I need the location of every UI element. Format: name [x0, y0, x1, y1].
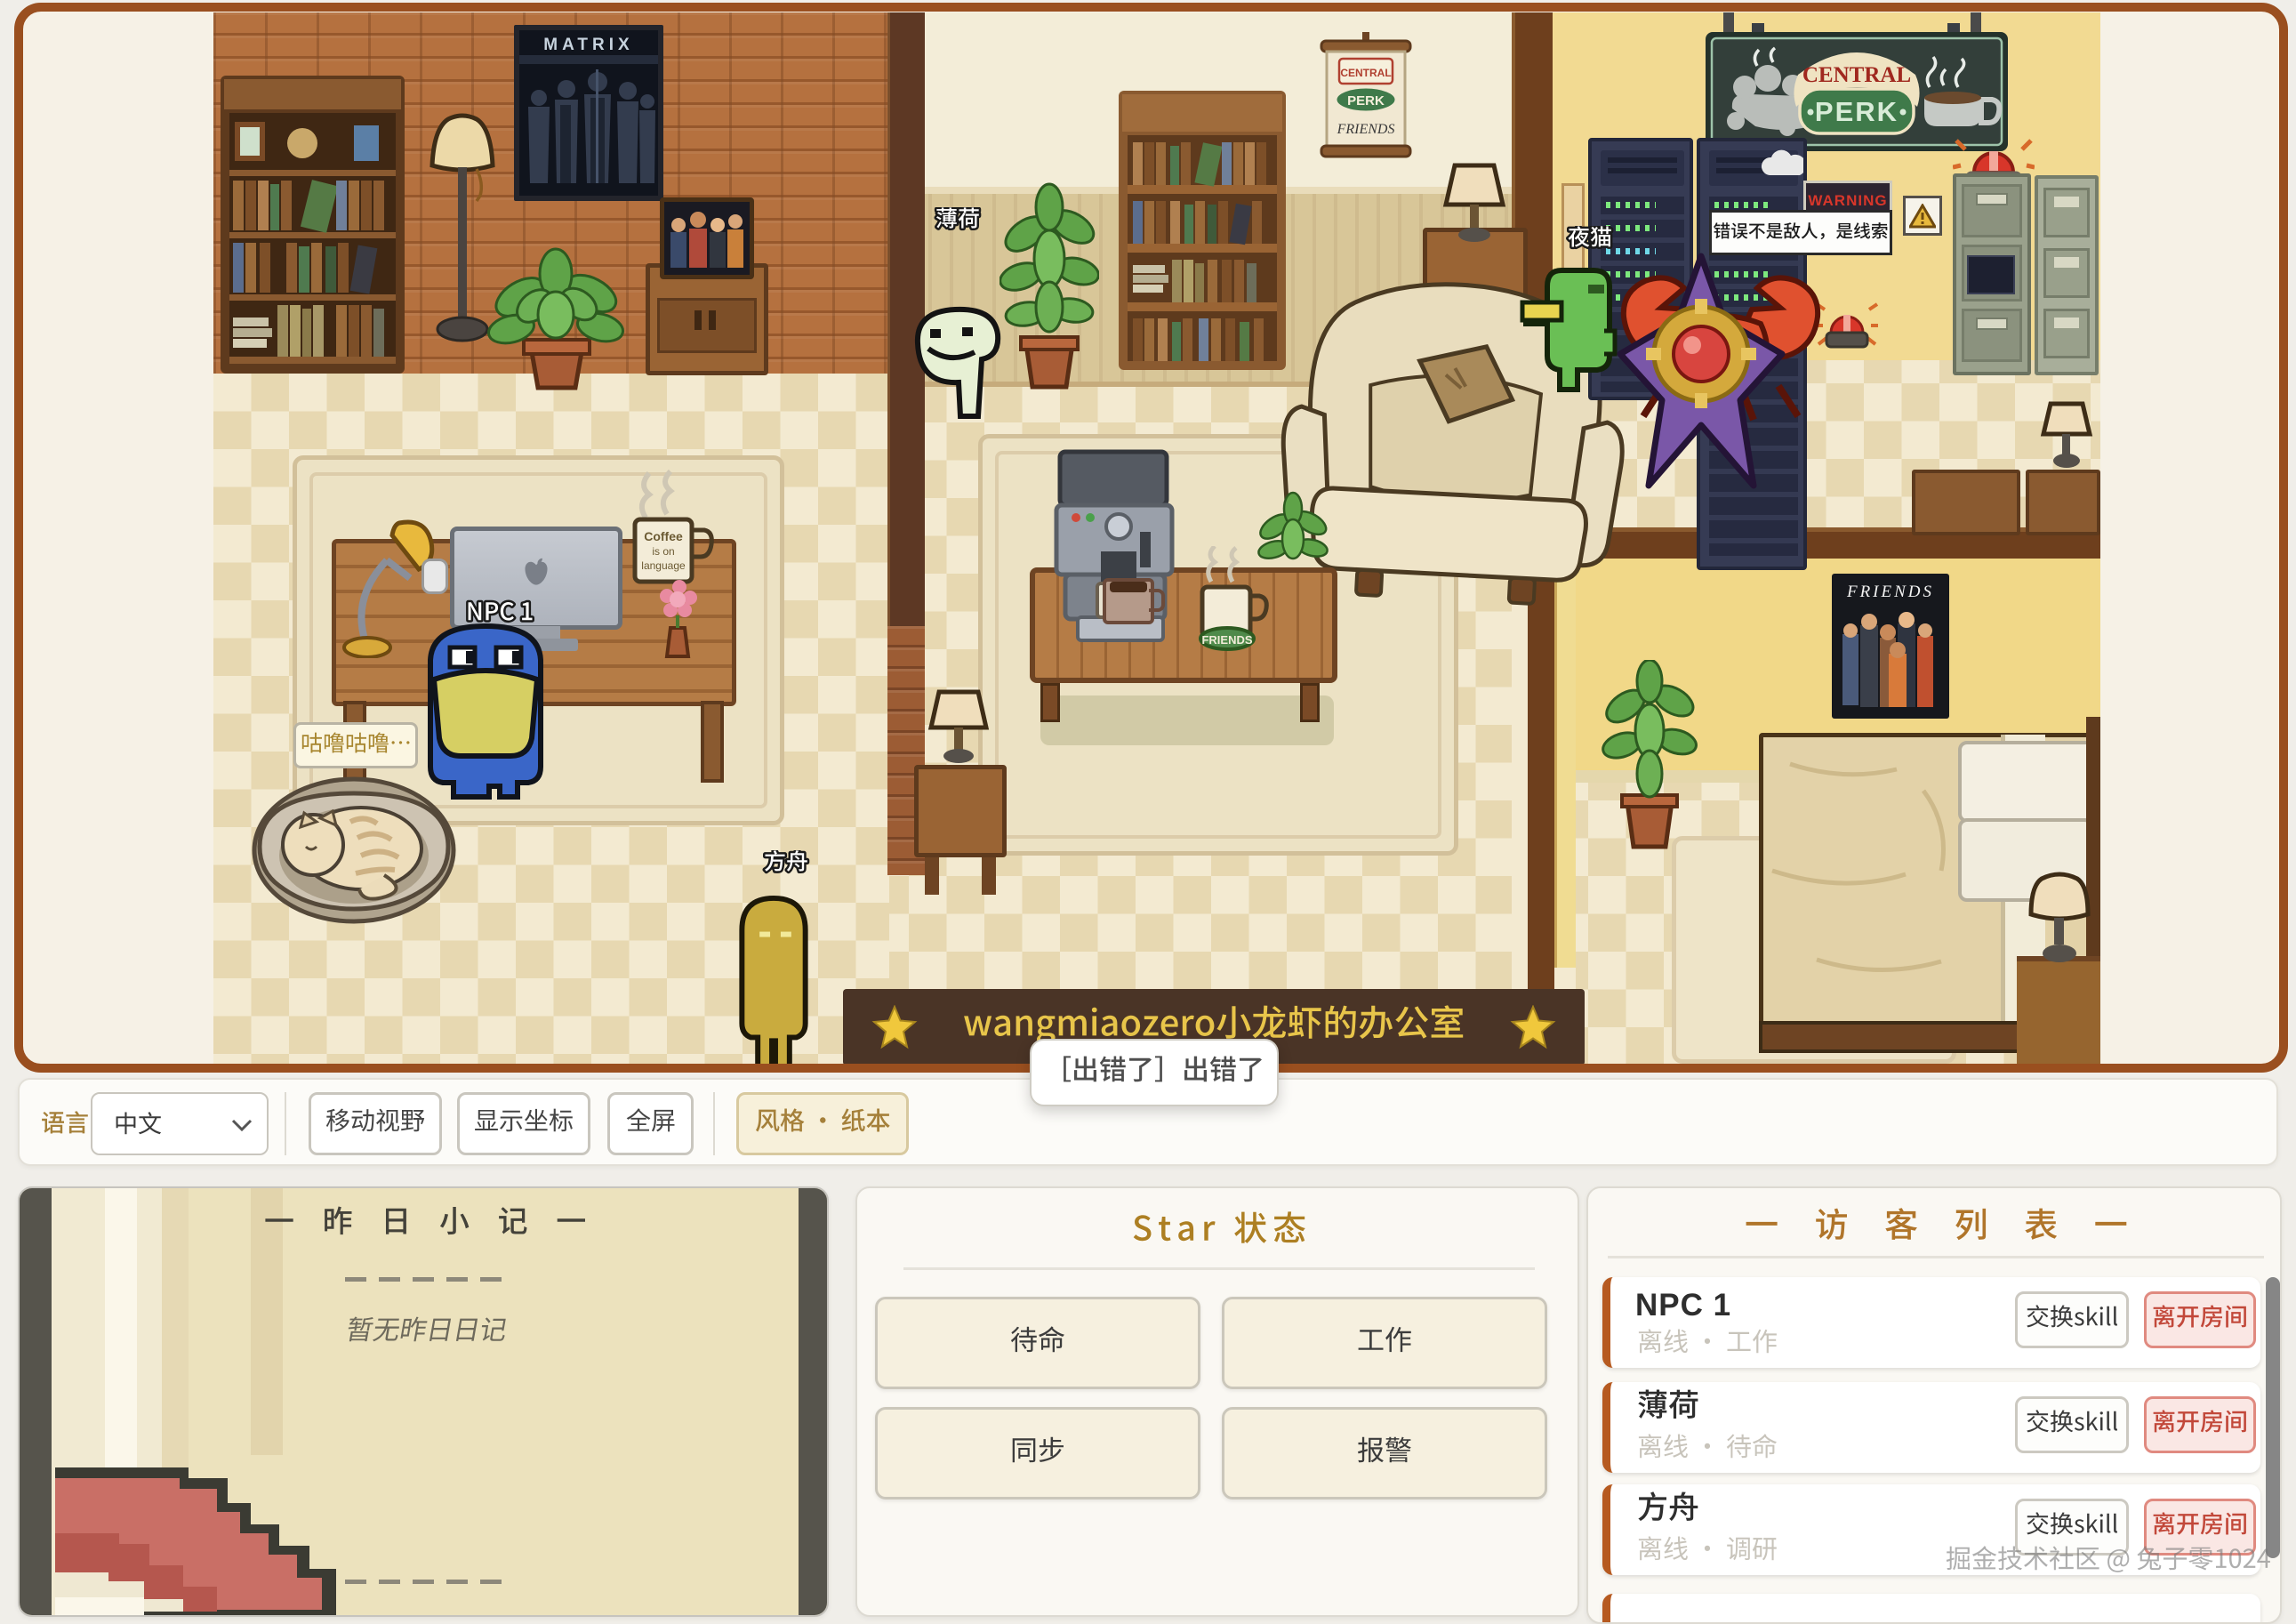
svg-text:CENTRAL: CENTRAL — [1340, 67, 1391, 79]
svg-text:language: language — [641, 559, 686, 572]
svg-text:is on: is on — [652, 545, 674, 558]
svg-text:PERK: PERK — [1347, 93, 1385, 109]
svg-text:FRIENDS: FRIENDS — [1337, 122, 1395, 137]
svg-text:PERK: PERK — [1815, 96, 1899, 127]
svg-text:Coffee: Coffee — [644, 529, 683, 543]
svg-text:CENTRAL: CENTRAL — [1802, 63, 1911, 87]
svg-text:FRIENDS: FRIENDS — [1201, 633, 1252, 647]
